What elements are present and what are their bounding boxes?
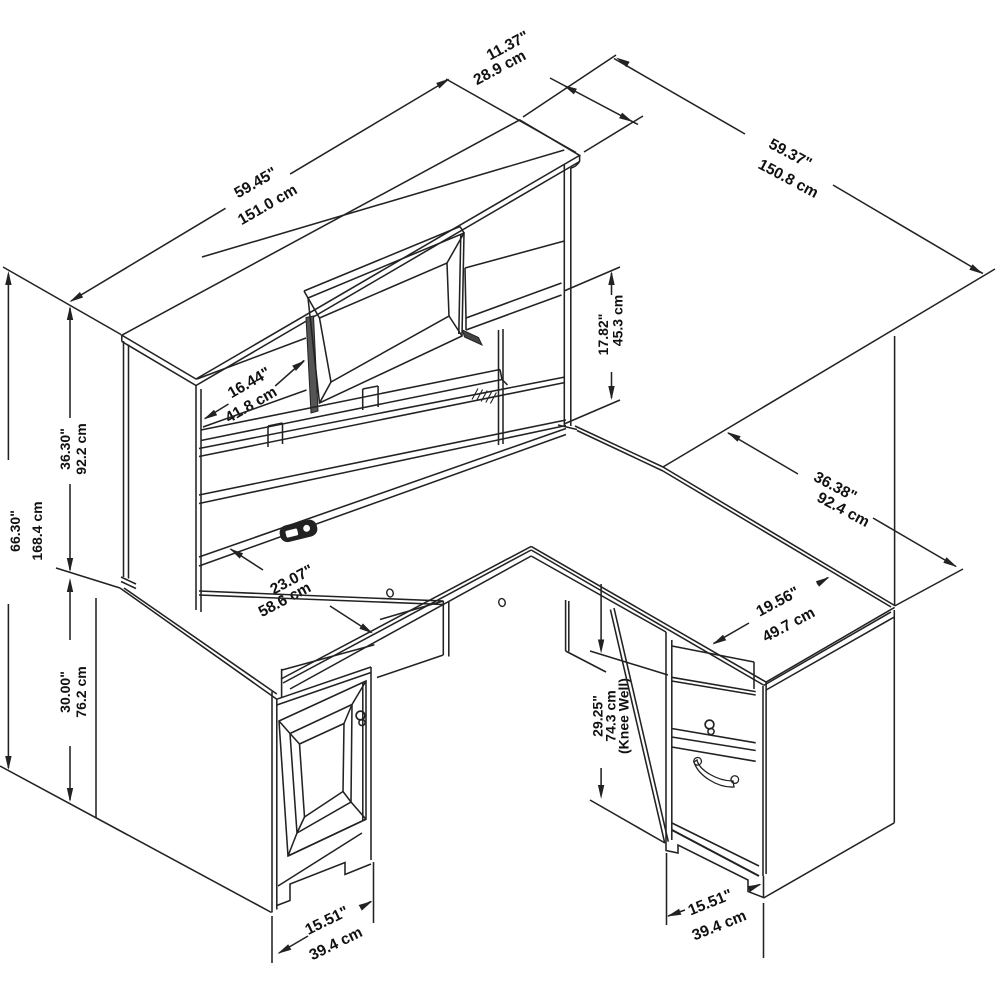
svg-text:45.3 cm: 45.3 cm [610, 295, 626, 346]
svg-text:30.00": 30.00" [57, 671, 73, 713]
svg-text:36.30": 36.30" [57, 428, 73, 470]
svg-text:76.2 cm: 76.2 cm [73, 666, 89, 717]
svg-text:168.4 cm: 168.4 cm [29, 501, 45, 560]
svg-text:66.30": 66.30" [7, 510, 23, 552]
svg-text:92.2 cm: 92.2 cm [73, 423, 89, 474]
